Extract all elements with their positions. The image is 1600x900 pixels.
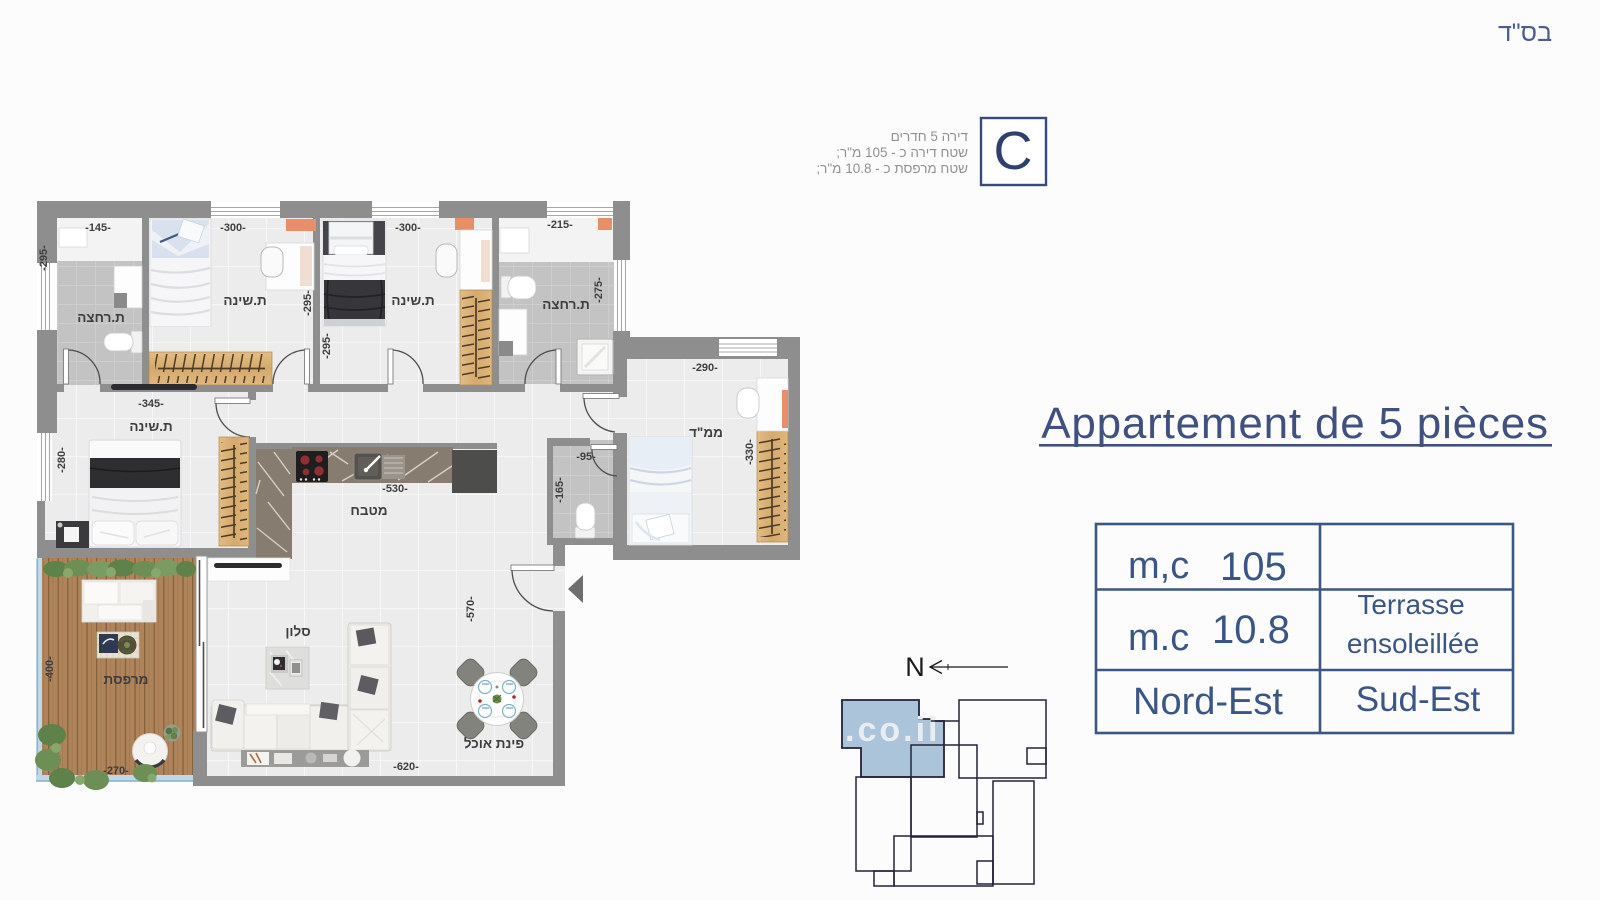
- svg-text:מרפסת: מרפסת: [104, 672, 149, 687]
- svg-text:C: C: [994, 121, 1033, 181]
- svg-text:-345-: -345-: [138, 398, 164, 410]
- svg-text:-400-: -400-: [44, 656, 56, 682]
- svg-text:-570-: -570-: [465, 596, 477, 622]
- svg-text:N: N: [905, 652, 925, 682]
- svg-text:ת.שינה: ת.שינה: [129, 419, 172, 434]
- svg-text:m.c: m.c: [1128, 617, 1189, 659]
- svg-text:שטח דירה כ - 105 מ"ר;: שטח דירה כ - 105 מ"ר;: [836, 145, 968, 160]
- svg-text:דירה 5 חדרים: דירה 5 חדרים: [891, 129, 969, 144]
- svg-text:-330-: -330-: [744, 439, 756, 465]
- svg-text:-280-: -280-: [56, 447, 68, 473]
- svg-text:-290-: -290-: [692, 362, 718, 374]
- svg-text:Sud-Est: Sud-Est: [1356, 680, 1481, 719]
- svg-text:.co.il: .co.il: [845, 711, 940, 749]
- svg-text:שטח מרפסת כ - 10.8 מ"ר;: שטח מרפסת כ - 10.8 מ"ר;: [816, 161, 968, 176]
- svg-text:-300-: -300-: [220, 222, 246, 234]
- svg-text:ensoleillée: ensoleillée: [1347, 628, 1479, 659]
- svg-text:ת.שינה: ת.שינה: [223, 293, 266, 308]
- svg-text:ממ"ד: ממ"ד: [689, 425, 723, 440]
- svg-text:-300-: -300-: [395, 222, 421, 234]
- svg-text:Terrasse: Terrasse: [1357, 589, 1464, 620]
- svg-text:-620-: -620-: [393, 761, 419, 773]
- svg-text:-270-: -270-: [103, 765, 129, 777]
- svg-text:-295-: -295-: [38, 245, 50, 271]
- svg-text:m,c: m,c: [1128, 545, 1189, 587]
- svg-text:-165-: -165-: [554, 477, 566, 503]
- svg-text:-275-: -275-: [593, 277, 605, 303]
- svg-text:-215-: -215-: [547, 219, 573, 231]
- svg-text:בס"ד: בס"ד: [1498, 19, 1552, 47]
- svg-text:Nord-Est: Nord-Est: [1133, 681, 1283, 723]
- svg-text:-530-: -530-: [382, 483, 408, 495]
- svg-text:Appartement de 5 pièces: Appartement de 5 pièces: [1041, 399, 1549, 448]
- svg-text:-295-: -295-: [321, 333, 333, 359]
- svg-text:10.8: 10.8: [1212, 608, 1290, 652]
- svg-text:-295-: -295-: [302, 290, 314, 316]
- svg-text:-95-: -95-: [576, 451, 596, 463]
- svg-text:פינת אוכל: פינת אוכל: [464, 736, 525, 751]
- svg-text:סלון: סלון: [285, 624, 310, 639]
- svg-text:105: 105: [1220, 545, 1287, 589]
- svg-text:ת.רחצה: ת.רחצה: [77, 310, 125, 325]
- svg-text:ת.רחצה: ת.רחצה: [542, 297, 590, 312]
- svg-text:ת.שינה: ת.שינה: [391, 293, 434, 308]
- svg-text:-145-: -145-: [85, 222, 111, 234]
- svg-text:מטבח: מטבח: [350, 503, 387, 518]
